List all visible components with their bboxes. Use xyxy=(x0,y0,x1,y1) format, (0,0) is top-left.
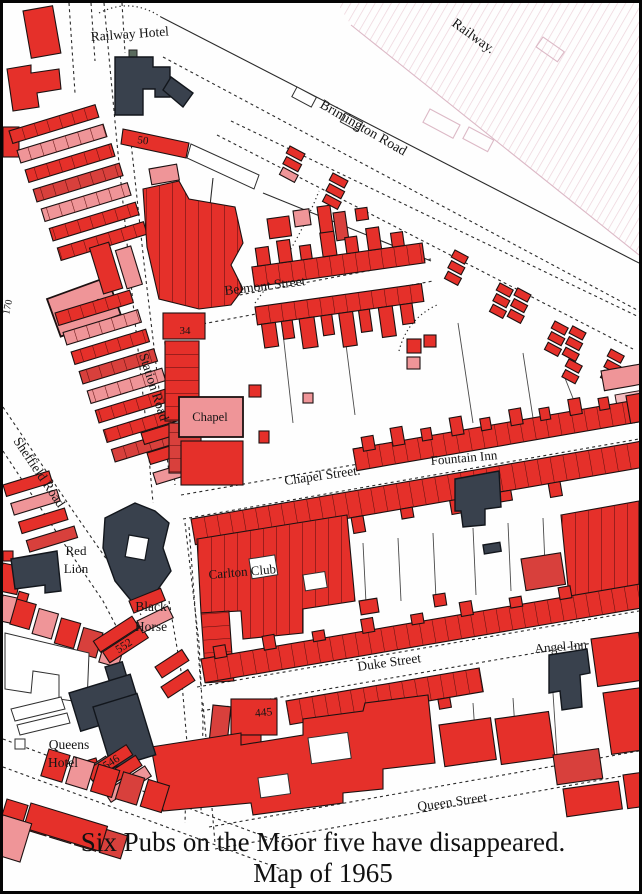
terrace-block-a xyxy=(9,101,147,264)
label-170: 170 xyxy=(3,299,15,316)
label-brimington-road: Brimington Road xyxy=(317,97,409,159)
caption: Six Pubs on the Moor five have disappear… xyxy=(81,827,565,888)
fountain-inn-building xyxy=(455,471,501,527)
label-red-lion-1: Red xyxy=(66,543,87,558)
label-queens-hotel-2: Hotel xyxy=(48,755,78,770)
label-445: 445 xyxy=(254,706,273,720)
label-34: 34 xyxy=(180,325,192,337)
label-queens-hotel-1: Queens xyxy=(49,737,90,752)
label-railway-hotel: Railway Hotel xyxy=(90,24,169,44)
label-chapel-east: Chapel xyxy=(192,410,228,424)
label-black-horse-1: Black xyxy=(135,599,167,614)
label-red-lion-2: Lion xyxy=(64,561,89,576)
caption-line1: Six Pubs on the Moor five have disappear… xyxy=(81,827,565,857)
chapel-block-scatter xyxy=(249,335,436,443)
moor-map-svg: Chapel xyxy=(3,3,639,891)
label-50: 50 xyxy=(137,134,150,147)
label-black-horse-2: Horse xyxy=(135,619,167,634)
caption-line2: Map of 1965 xyxy=(253,858,392,888)
railway-hotel-building xyxy=(115,50,193,115)
map-image: Chapel xyxy=(0,0,642,894)
label-chapel-street: Chapel Street. xyxy=(283,462,361,487)
label-queen-street: Queen Street xyxy=(416,789,488,814)
belmont-triangle-buildings xyxy=(267,205,369,241)
belmont-south-terrace xyxy=(255,284,429,359)
